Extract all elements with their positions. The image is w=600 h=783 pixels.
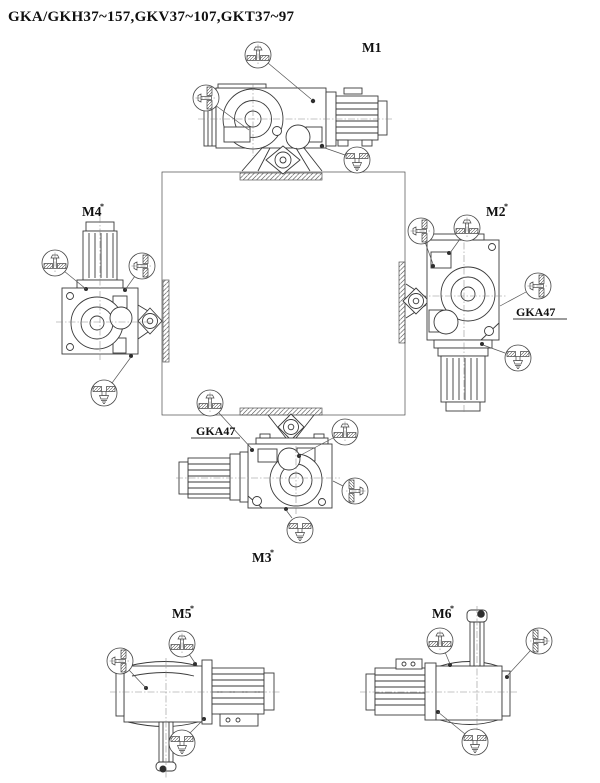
m2-oil-level-plug-callout <box>408 218 434 244</box>
m2-label-sup: * <box>504 202 508 211</box>
mounting-box <box>162 172 405 415</box>
m3-label-sup: * <box>270 548 274 557</box>
m5-label: M5 <box>172 606 192 621</box>
m2-label: M2 <box>486 204 506 219</box>
m2-vent-plug-callout <box>454 215 480 241</box>
m3-vent-plug-callout-2 <box>332 419 358 445</box>
m2-gka47-note: GKA47 <box>516 305 555 319</box>
mounting-surface-left <box>163 280 169 362</box>
m5-assembly <box>107 631 280 778</box>
m5-oil-level-plug-callout <box>107 648 133 674</box>
m1-vent-plug-callout <box>245 42 271 68</box>
m3-vent-plug-callout-1 <box>197 390 223 416</box>
m1-oil-level-plug-callout <box>193 85 219 111</box>
m4-label-sup: * <box>100 202 104 211</box>
m5-oil-drain-plug-callout <box>169 730 195 756</box>
m4-label: M4 <box>82 204 102 219</box>
m2-gka47-oil-level-plug-callout <box>525 273 551 299</box>
m5-vent-plug-callout <box>169 631 195 657</box>
diagram-canvas: GKA/GKH37~157,GKV37~107,GKT37~97 <box>0 0 600 783</box>
m3-oil-level-plug-callout <box>342 478 368 504</box>
m1-oil-drain-plug-callout <box>344 147 370 173</box>
mounting-surface-top <box>240 173 322 180</box>
m6-oil-level-plug-callout <box>526 628 552 654</box>
m2-oil-drain-plug-callout <box>505 345 531 371</box>
m3-label: M3 <box>252 550 272 565</box>
m6-vent-plug-callout <box>427 628 453 654</box>
m5-label-sup: * <box>190 604 194 613</box>
m6-oil-drain-plug-callout <box>462 729 488 755</box>
m4-oil-drain-plug-callout <box>91 380 117 406</box>
mounting-surface-bottom <box>240 408 322 415</box>
m4-assembly <box>42 216 162 406</box>
m6-assembly <box>360 606 552 755</box>
m3-gka47-note: GKA47 <box>196 424 235 438</box>
m4-oil-level-plug-callout <box>129 253 155 279</box>
page-title: GKA/GKH37~157,GKV37~107,GKT37~97 <box>8 9 295 25</box>
m6-label-sup: * <box>450 604 454 613</box>
m1-assembly <box>193 42 392 174</box>
m6-label: M6 <box>432 606 452 621</box>
mounting-positions-diagram: GKA/GKH37~157,GKV37~107,GKT37~97 <box>0 0 600 783</box>
m4-vent-plug-callout <box>42 250 68 276</box>
m1-label: M1 <box>362 40 382 55</box>
m3-oil-drain-plug-callout <box>287 517 313 543</box>
